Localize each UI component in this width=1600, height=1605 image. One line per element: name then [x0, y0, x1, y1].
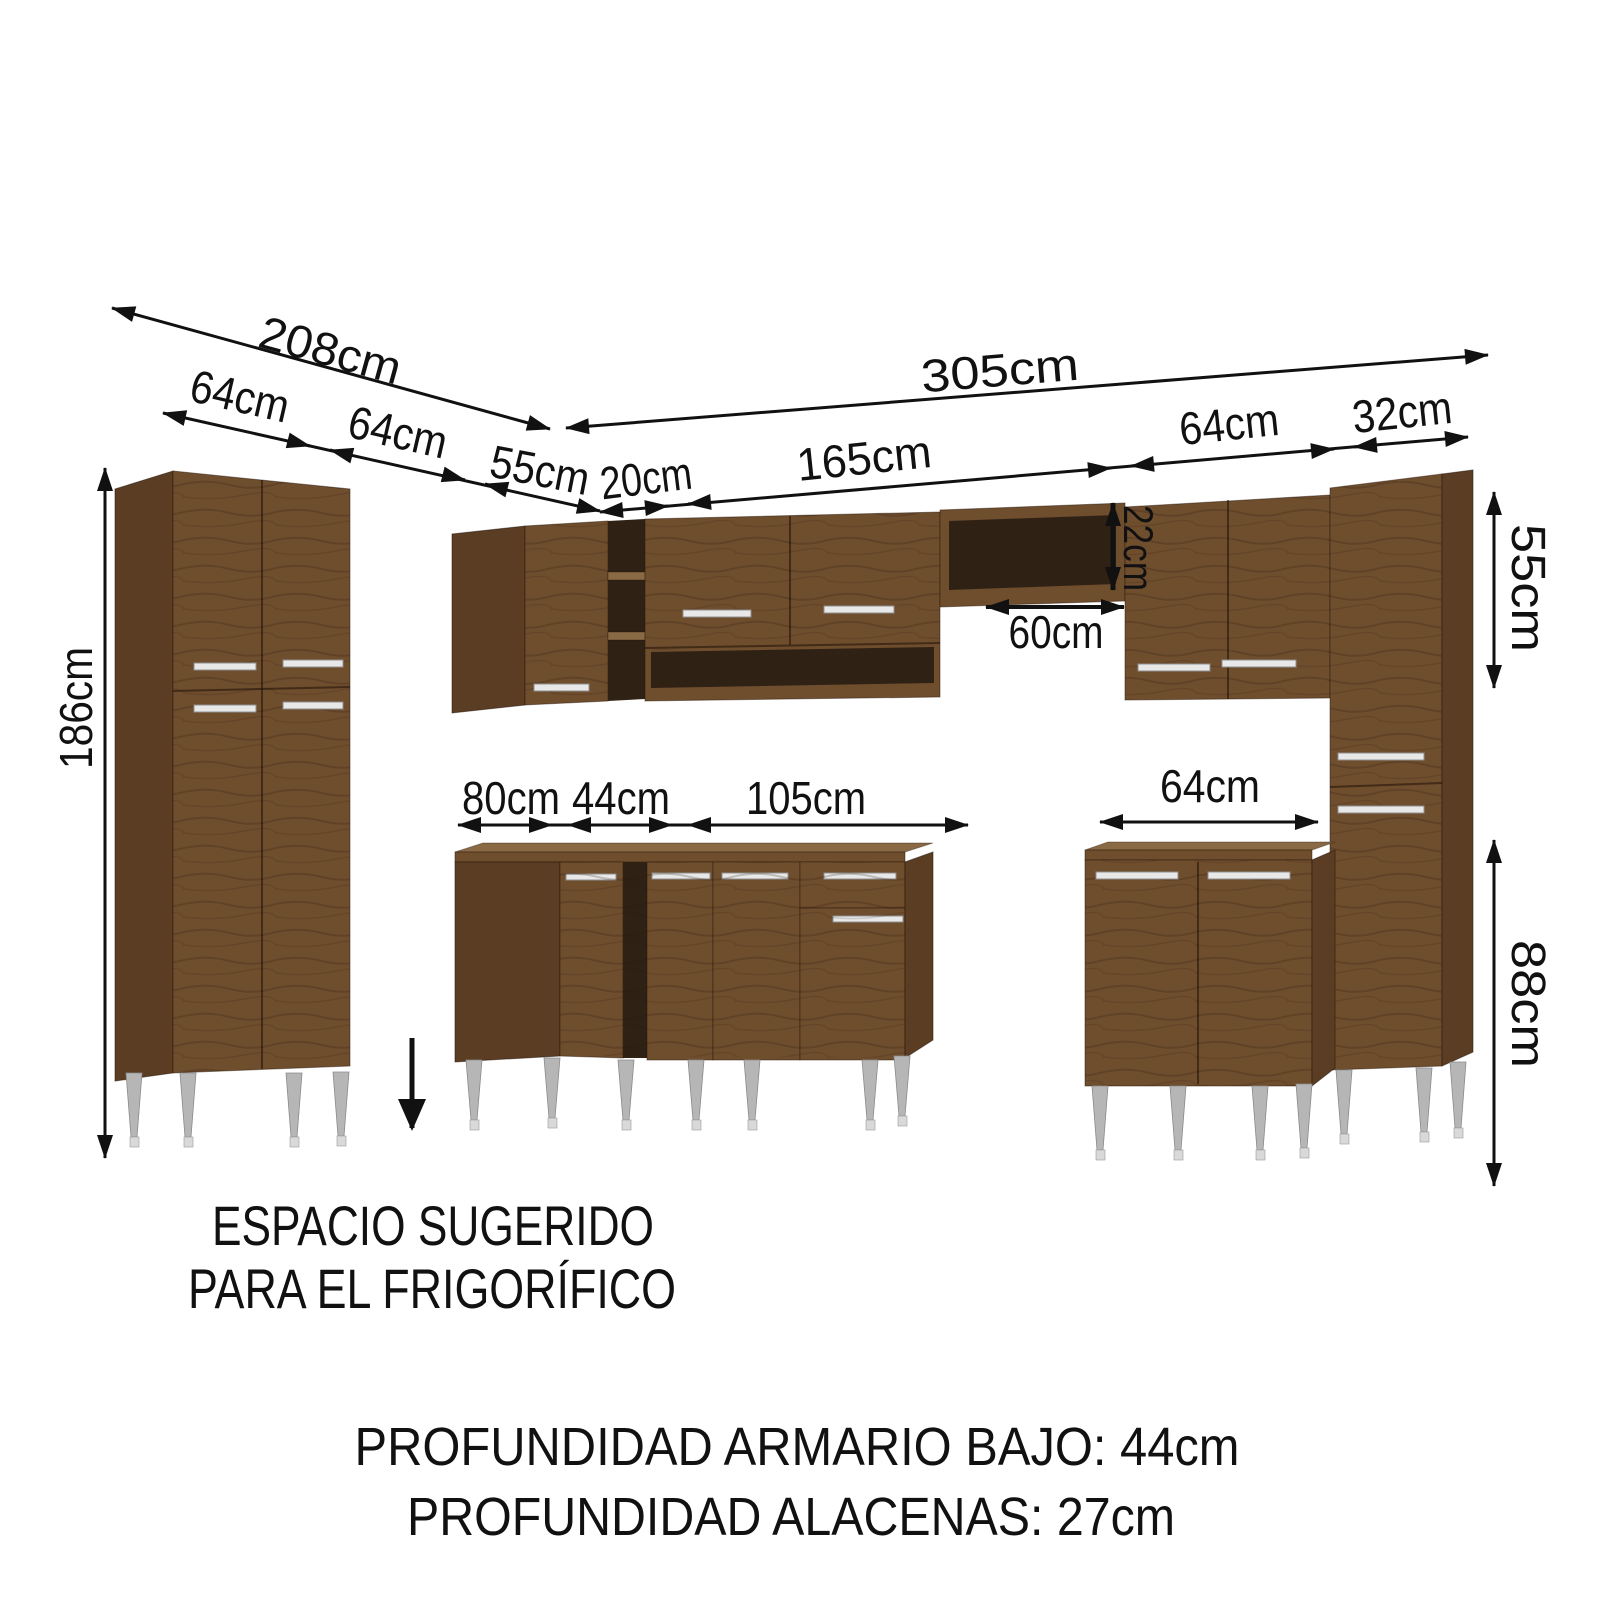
open-shelf-interior [949, 515, 1116, 590]
main-wall-cabinet [645, 512, 940, 701]
depth-notes: PROFUNDIDAD ARMARIO BAJO: 44cm PROFUNDID… [355, 1417, 1240, 1547]
tall-cabinet-handle [1338, 806, 1424, 813]
corner-base-right-side [905, 852, 933, 1058]
dim-base-right-width: 64cm [1100, 760, 1318, 822]
pantry-handle [283, 702, 343, 709]
pantry-legs [126, 1072, 349, 1147]
diagram-canvas: 208cm 64cm 64cm 55cm 305cm 20cm 165cm 64… [0, 0, 1600, 1600]
dim-shelf-height: 22cm [1113, 503, 1162, 591]
dim-label: 105cm [746, 772, 866, 824]
right-base-countertop [1085, 842, 1335, 850]
corner-base-handle [566, 874, 616, 880]
corner-base-recess [623, 862, 647, 1058]
depth-note-line1: PROFUNDIDAD ARMARIO BAJO: 44cm [355, 1417, 1240, 1477]
dim-label: 80cm [462, 772, 560, 824]
corner-base-counter-edge [455, 852, 905, 862]
pantry-handle [283, 660, 343, 667]
cubby-shelf [608, 572, 645, 580]
corner-wall-cubbies [608, 519, 645, 701]
right-base-handle [1096, 872, 1178, 879]
pantry-cabinet [115, 471, 350, 1147]
corner-wall-side [452, 526, 525, 713]
tall-cabinet-legs [1336, 1062, 1466, 1144]
right-base-side [1312, 850, 1335, 1086]
cubby-shelf [608, 632, 645, 640]
kitchen-dimension-diagram: 208cm 64cm 64cm 55cm 305cm 20cm 165cm 64… [0, 0, 1600, 1600]
dim-base-segments: 80cm 44cm 105cm [458, 772, 968, 825]
corner-base-handle [652, 873, 710, 879]
pantry-side-panel [115, 471, 173, 1081]
right-base-legs [1092, 1084, 1312, 1160]
tall-cabinet-front [1330, 474, 1442, 1070]
dim-pantry-height: 186cm [50, 468, 105, 1158]
main-wall-handle [683, 610, 751, 617]
dim-label: 44cm [572, 772, 670, 824]
dim-label: 305cm [919, 338, 1081, 403]
dim-label: 20cm [597, 447, 695, 510]
dim-label: 165cm [794, 425, 934, 491]
open-shelf-unit [940, 503, 1125, 607]
dim-label: 88cm [1501, 940, 1554, 1068]
tall-cabinet-handle [1338, 753, 1424, 760]
dim-shelf-gap: 60cm [986, 606, 1124, 658]
dim-label: 64cm [1160, 760, 1260, 812]
fridge-space-text-line1: ESPACIO SUGERIDO [212, 1194, 654, 1257]
right-base-cabinet [1085, 842, 1335, 1160]
dim-label: 186cm [50, 647, 102, 769]
main-wall-handle [824, 606, 894, 613]
corner-base-drawer [800, 862, 905, 908]
dim-label: 60cm [1009, 606, 1104, 658]
corner-base-legs [466, 1056, 910, 1130]
corner-base-drawer-handle [824, 873, 896, 879]
right-base-handle [1208, 872, 1290, 879]
corner-base-countertop [455, 843, 933, 852]
dim-label: 55cm [486, 435, 594, 505]
corner-base-door [713, 862, 800, 1060]
right-wall-handle [1138, 664, 1210, 671]
fridge-space-text-line2: PARA EL FRIGORÍFICO [188, 1257, 676, 1320]
dim-total-depth-left: 208cm [112, 306, 550, 429]
tall-cabinet-side [1442, 470, 1473, 1066]
corner-wall-handle [534, 684, 589, 691]
dim-base-cabinet-height: 88cm [1494, 840, 1554, 1186]
right-wall-handle [1222, 660, 1296, 667]
pantry-handle [194, 705, 256, 712]
dim-label: 32cm [1350, 381, 1455, 443]
corner-base-cabinet [455, 843, 933, 1130]
dim-total-width-top: 305cm [566, 338, 1488, 428]
corner-base-door [647, 862, 713, 1060]
main-wall-open-shelf [651, 647, 934, 688]
dim-upper-cabinet-height: 55cm [1494, 492, 1554, 688]
right-base-counter-edge [1085, 850, 1312, 860]
corner-base-door [800, 908, 905, 1060]
corner-wall-door [525, 521, 608, 705]
tall-side-cabinet [1330, 470, 1473, 1144]
fridge-space-annotation: ESPACIO SUGERIDO PARA EL FRIGORÍFICO [188, 1038, 676, 1320]
dim-label: 55cm [1501, 524, 1554, 652]
corner-base-corner-door [560, 862, 623, 1058]
corner-base-handle [722, 873, 788, 879]
pantry-handle [194, 663, 256, 670]
dim-label: 22cm [1115, 505, 1162, 591]
dim-label: 64cm [1177, 393, 1282, 455]
corner-base-handle [833, 916, 903, 922]
corner-wall-cabinet [452, 519, 645, 713]
corner-base-side [455, 862, 560, 1062]
depth-note-line2: PROFUNDIDAD ALACENAS: 27cm [407, 1487, 1175, 1547]
